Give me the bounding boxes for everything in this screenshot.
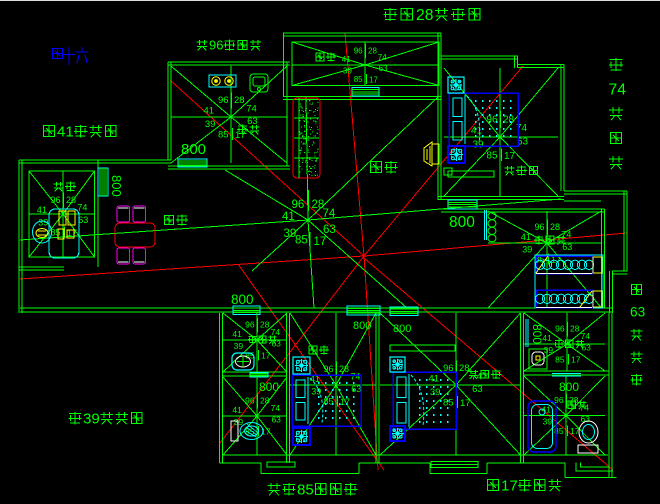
svg-text:96: 96 (486, 115, 498, 126)
svg-text:63: 63 (351, 384, 361, 394)
svg-text:41: 41 (282, 211, 295, 223)
svg-text:74: 74 (323, 208, 336, 220)
svg-text:17: 17 (235, 130, 246, 141)
svg-text:28: 28 (66, 195, 76, 205)
svg-text:74: 74 (378, 53, 387, 62)
svg-text:17: 17 (261, 351, 271, 361)
svg-text:17: 17 (314, 236, 327, 248)
svg-text:41: 41 (471, 126, 483, 137)
svg-text:74: 74 (77, 203, 87, 213)
svg-text:85: 85 (443, 397, 454, 408)
svg-text:39: 39 (234, 341, 244, 351)
svg-text:800: 800 (259, 380, 279, 394)
svg-text:39: 39 (522, 244, 532, 254)
svg-text:85: 85 (324, 396, 334, 406)
svg-text:63: 63 (323, 224, 336, 236)
svg-text:28: 28 (570, 324, 580, 334)
svg-text:85: 85 (297, 481, 314, 498)
svg-text:39: 39 (473, 140, 485, 151)
svg-text:63: 63 (78, 215, 88, 225)
svg-text:800: 800 (181, 141, 206, 158)
svg-text:28: 28 (339, 364, 349, 374)
svg-text:28: 28 (368, 46, 377, 55)
svg-text:63: 63 (271, 414, 281, 424)
svg-text:39: 39 (343, 66, 352, 75)
svg-text:63: 63 (472, 384, 483, 395)
svg-text:96: 96 (218, 95, 229, 106)
svg-text:96: 96 (324, 364, 334, 374)
svg-text:74: 74 (471, 371, 482, 382)
svg-text:63: 63 (630, 305, 645, 320)
svg-text:800: 800 (393, 323, 411, 335)
svg-text:17: 17 (67, 228, 77, 238)
svg-text:17: 17 (501, 477, 518, 494)
svg-text:74: 74 (350, 372, 360, 382)
svg-text:96: 96 (555, 324, 565, 334)
svg-text:41: 41 (232, 405, 242, 415)
svg-text:85: 85 (354, 75, 363, 84)
svg-text:85: 85 (295, 235, 308, 247)
svg-text:17: 17 (369, 76, 378, 85)
svg-text:17: 17 (504, 151, 516, 162)
svg-text:39: 39 (543, 416, 553, 426)
svg-text:63: 63 (271, 338, 281, 348)
svg-text:39: 39 (83, 410, 100, 427)
svg-text:74: 74 (609, 81, 627, 98)
svg-text:28: 28 (260, 396, 270, 406)
svg-text:41: 41 (37, 205, 47, 215)
svg-text:41: 41 (57, 123, 74, 140)
svg-text:41: 41 (232, 329, 242, 339)
svg-text:85: 85 (555, 354, 565, 364)
svg-text:28: 28 (550, 222, 560, 232)
svg-text:74: 74 (271, 403, 281, 413)
svg-text:39: 39 (205, 119, 216, 130)
svg-text:41: 41 (521, 232, 531, 242)
svg-text:96: 96 (209, 38, 223, 53)
svg-text:800: 800 (559, 380, 579, 394)
svg-text:28: 28 (234, 95, 245, 106)
svg-text:85: 85 (486, 151, 498, 162)
svg-text:28: 28 (260, 320, 270, 330)
svg-text:800: 800 (231, 292, 254, 307)
svg-text:96: 96 (51, 195, 61, 205)
svg-text:96: 96 (354, 46, 363, 55)
svg-text:17: 17 (340, 397, 350, 407)
svg-text:96: 96 (245, 320, 255, 330)
svg-text:96: 96 (292, 199, 305, 211)
svg-text:74: 74 (581, 331, 591, 341)
svg-text:800: 800 (530, 324, 544, 344)
svg-text:74: 74 (271, 327, 281, 337)
svg-text:17: 17 (571, 355, 581, 365)
svg-text:96: 96 (535, 222, 545, 232)
svg-text:17: 17 (570, 426, 580, 436)
svg-text:74: 74 (246, 103, 257, 114)
svg-text:800: 800 (449, 214, 475, 231)
svg-text:39: 39 (430, 387, 441, 398)
svg-text:41: 41 (428, 374, 439, 385)
svg-text:800: 800 (353, 320, 371, 332)
svg-text:28: 28 (459, 363, 470, 374)
svg-text:17: 17 (460, 398, 471, 409)
svg-text:39: 39 (544, 345, 554, 355)
svg-text:63: 63 (379, 64, 388, 73)
svg-text:28: 28 (503, 115, 515, 126)
svg-text:28: 28 (416, 7, 434, 24)
svg-text:41: 41 (342, 55, 351, 64)
svg-text:85: 85 (218, 129, 229, 140)
svg-text:63: 63 (580, 414, 590, 424)
svg-text:96: 96 (245, 396, 255, 406)
svg-text:41: 41 (203, 106, 214, 117)
svg-text:800: 800 (109, 175, 124, 197)
